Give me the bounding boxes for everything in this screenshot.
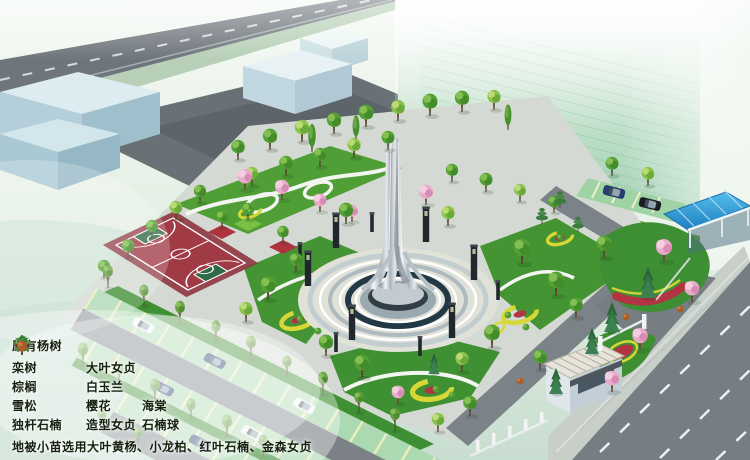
shrub-ball [505, 312, 512, 319]
landscape-plan-rendering: 原有杨树 栾树 大叶女贞 棕榈 白玉兰 雪松 樱花 [0, 0, 750, 460]
legend-item: 樱花 [86, 397, 142, 414]
mist-overlay [0, 0, 750, 60]
shrub-ball [523, 324, 530, 331]
legend-item: 独杆石楠 [12, 416, 86, 433]
shrub-ball [297, 316, 304, 323]
legend-row: 栾树 大叶女贞 [12, 358, 312, 376]
legend-label: 棕榈 [12, 378, 37, 395]
gate-pillar [642, 314, 647, 329]
legend-item: 白玉兰 [86, 378, 124, 395]
legend-label: 大叶女贞 [86, 359, 136, 376]
legend-row: 雪松 樱花 海棠 [12, 396, 312, 414]
legend-item: 海棠 [142, 397, 167, 414]
legend-label: 樱花 [86, 397, 111, 414]
legend-item: 雪松 [12, 397, 86, 414]
shrub-ball [247, 208, 253, 214]
shrub-ball [433, 386, 440, 393]
gate-pillar [598, 336, 603, 351]
legend-row: 棕榈 白玉兰 [12, 377, 312, 395]
legend-item: 石楠球 [142, 416, 180, 433]
legend-label: 造型女贞 [86, 416, 136, 433]
shrub-ball [449, 392, 456, 399]
legend-label: 雪松 [12, 397, 37, 414]
legend-label: 独杆石楠 [12, 416, 62, 433]
legend-item: 棕榈 [12, 378, 86, 395]
photinia-ball-shrub [623, 314, 630, 321]
legend-item: 造型女贞 [86, 416, 142, 433]
legend-label: 海棠 [142, 397, 167, 414]
legend-item: 大叶女贞 [86, 359, 136, 376]
legend-row: 原有杨树 [12, 334, 312, 356]
photinia-ball-shrub [677, 306, 684, 313]
photinia-ball-icon [12, 334, 32, 356]
ground-cover-note: 地被小苗选用大叶黄杨、小龙柏、红叶石楠、金森女贞 [12, 438, 312, 455]
plant-legend: 原有杨树 栾树 大叶女贞 棕榈 白玉兰 雪松 樱花 [12, 334, 312, 455]
legend-label: 石楠球 [142, 416, 180, 433]
shrub-ball [315, 328, 322, 335]
legend-item: 栾树 [12, 359, 86, 376]
photinia-ball-shrub [517, 378, 524, 385]
shrub-ball [557, 234, 563, 240]
legend-label: 栾树 [12, 359, 37, 376]
legend-label: 白玉兰 [86, 378, 124, 395]
legend-row: 独杆石楠 造型女贞 石楠球 [12, 415, 312, 433]
